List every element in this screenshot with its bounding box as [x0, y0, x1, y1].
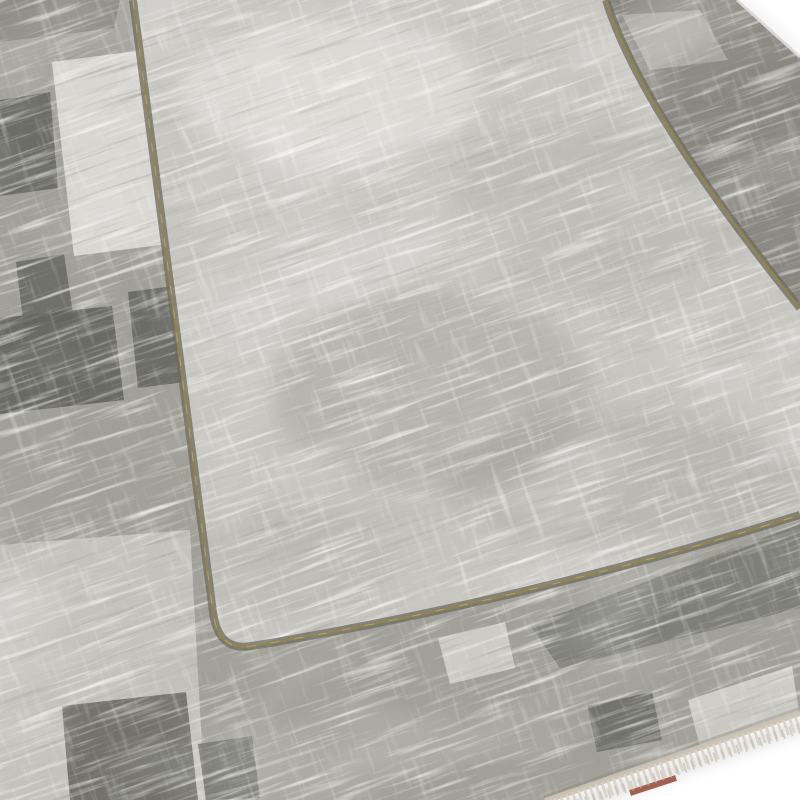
rug-illustration: [0, 0, 800, 800]
area-rug: [0, 0, 800, 800]
rug-photo: [0, 0, 800, 800]
